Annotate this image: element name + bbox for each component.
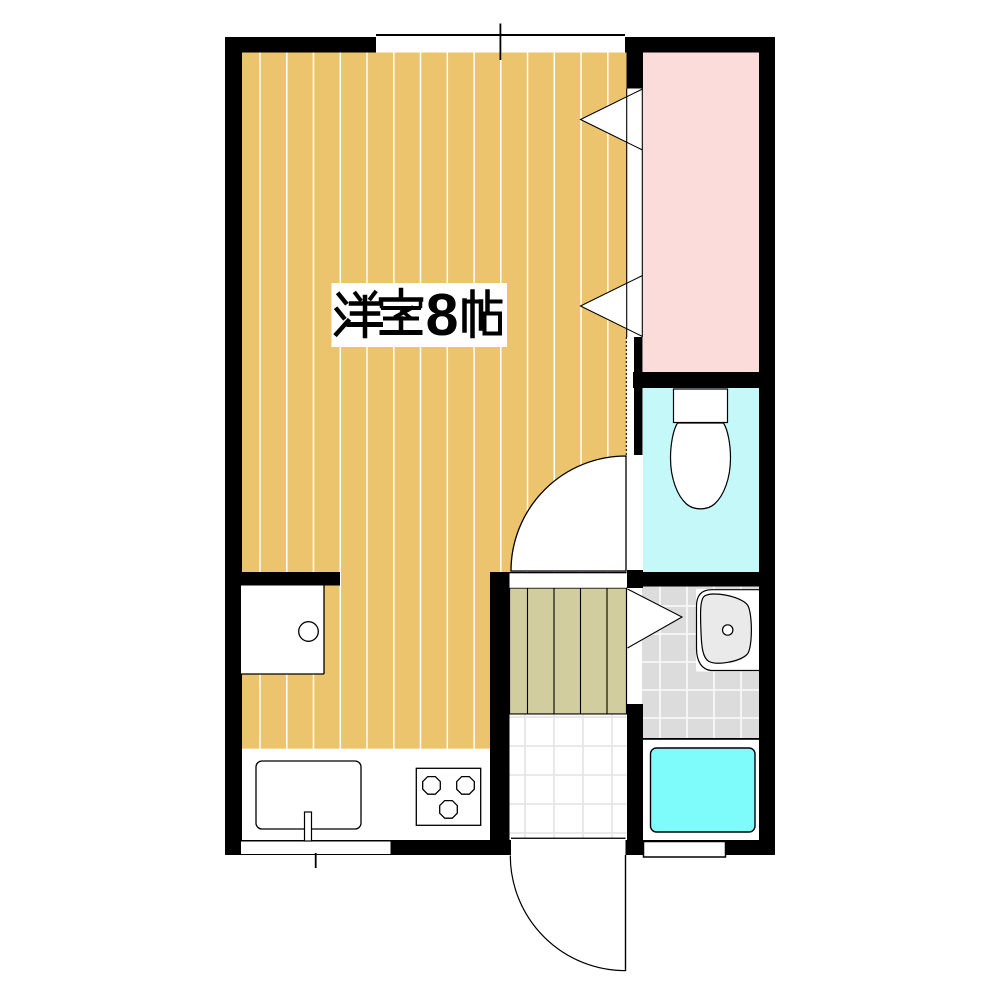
svg-text:8: 8 (426, 282, 459, 348)
